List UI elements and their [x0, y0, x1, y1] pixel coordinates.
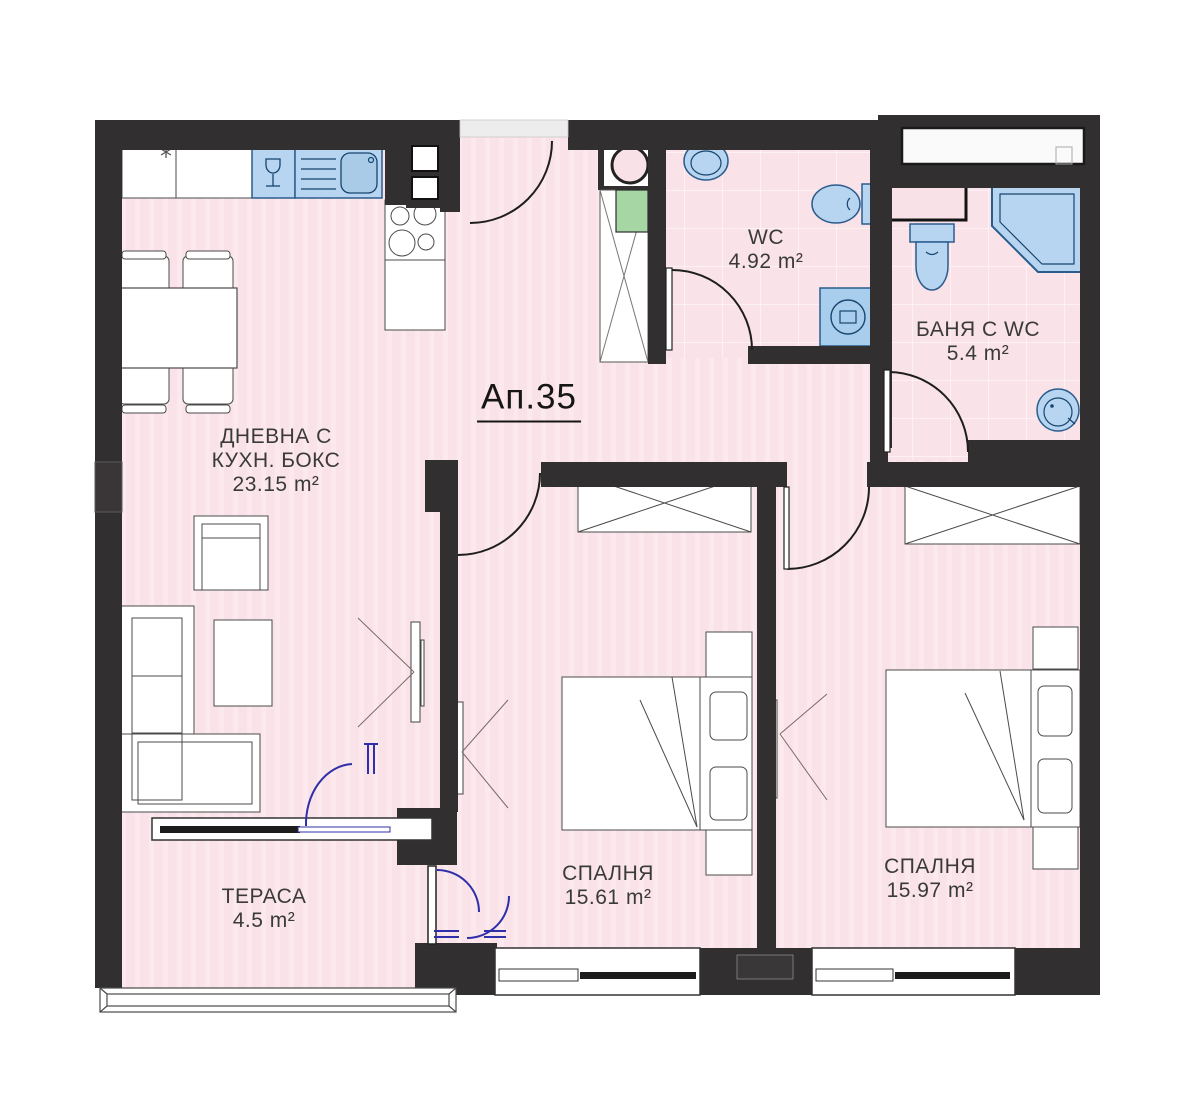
shaft-window	[902, 128, 1084, 164]
bedroom2-door-leaf	[784, 487, 789, 569]
nightstand	[1033, 827, 1078, 869]
living-name-line1: ДНЕВНА С	[212, 425, 341, 449]
wall-notch	[737, 955, 793, 979]
nightstand	[706, 830, 752, 875]
kitchen-counter	[122, 148, 255, 198]
wall-bottom-right	[1015, 948, 1100, 995]
terrace-railing	[100, 988, 456, 1012]
window1-panel	[580, 972, 696, 979]
terrace-name: ТЕРАСА	[222, 885, 307, 909]
bath-vanity	[890, 184, 966, 220]
tv-living-bracket	[421, 640, 424, 706]
tv-living-icon	[411, 622, 420, 722]
boiler-icon	[612, 147, 648, 183]
bathroom-name: БАНЯ С WC	[916, 318, 1040, 342]
bath-sink-icon	[1037, 389, 1079, 431]
wall-bedroom1-bedroom2	[757, 487, 776, 948]
window2-panel	[895, 972, 1010, 979]
bedroom1-name: СПАЛНЯ	[562, 862, 654, 886]
wall-wc-bottom-left	[648, 346, 666, 364]
wall-right	[1080, 180, 1100, 992]
living-area: 23.15 m²	[212, 473, 341, 497]
wall-bath-bottom-right	[968, 440, 1080, 462]
entrance-jamb	[440, 138, 460, 212]
wc-door-leaf	[666, 268, 672, 350]
pillow	[710, 692, 747, 740]
wall-hall-bedroom1	[541, 462, 787, 487]
room-label-terrace: ТЕРАСА 4.5 m²	[222, 885, 307, 933]
wall-closet-wc	[648, 138, 666, 364]
bed-bedroom1	[562, 677, 700, 830]
wc-name: WC	[729, 226, 804, 250]
room-label-bedroom2: СПАЛНЯ 15.97 m²	[884, 855, 976, 903]
chair-back	[122, 251, 166, 259]
bedroom1-area: 15.61 m²	[562, 886, 654, 910]
wall-left-seam	[95, 462, 122, 512]
nightstand	[706, 632, 752, 677]
window2-sash	[816, 969, 893, 981]
wall-bottom-block-left	[415, 943, 497, 995]
coffee-table	[214, 620, 272, 706]
pillow	[1038, 686, 1072, 736]
room-label-bathroom: БАНЯ С WC 5.4 m²	[916, 318, 1040, 366]
pillow	[710, 767, 747, 820]
chair-back	[186, 405, 230, 413]
terrace-door-leaf	[428, 866, 436, 944]
wall-bedroom2-top	[867, 462, 1080, 487]
bath-toilet-icon	[916, 242, 948, 290]
pillow	[1038, 759, 1072, 813]
bedroom2-name: СПАЛНЯ	[884, 855, 976, 879]
apartment-number: Ап.35	[477, 378, 581, 423]
chair-back	[122, 405, 166, 413]
room-label-wc: WC 4.92 m²	[729, 226, 804, 274]
floor-plan: Ап.35 ДНЕВНА С КУХН. БОКС 23.15 m² WC 4.…	[0, 0, 1181, 1093]
wall-left	[95, 148, 122, 988]
wall-wc-bottom-right	[748, 346, 878, 364]
bedroom2-area: 15.97 m²	[884, 879, 976, 903]
electric-panel	[616, 190, 648, 232]
window1-sash	[499, 969, 578, 981]
wall-living-bedroom1	[440, 512, 458, 812]
wall-top-mid	[568, 120, 878, 150]
pillar-living-hall	[425, 460, 458, 512]
wc-toilet-icon	[812, 185, 860, 223]
armchair-seat	[202, 524, 260, 590]
room-label-living: ДНЕВНА С КУХН. БОКС 23.15 m²	[212, 425, 341, 497]
wc-area: 4.92 m²	[729, 250, 804, 274]
chair-back	[186, 251, 230, 259]
kitchen-counter-lower	[385, 260, 445, 330]
bathroom-area: 5.4 m²	[916, 342, 1040, 366]
terrace-area: 4.5 m²	[222, 909, 307, 933]
living-name-line2: КУХН. БОКС	[212, 449, 341, 473]
dining-table	[117, 288, 237, 368]
sink-basin-icon	[341, 153, 377, 193]
entrance-opening	[460, 120, 568, 137]
bed-bedroom2	[886, 670, 1031, 827]
slider-fixed-panel	[160, 826, 300, 833]
bath-toilet-tank	[910, 224, 954, 242]
washing-machine-icon	[820, 288, 876, 346]
bathroom-door-leaf	[884, 370, 890, 452]
slider-open-panel	[298, 827, 390, 832]
nightstand	[1033, 627, 1078, 669]
room-label-bedroom1: СПАЛНЯ 15.61 m²	[562, 862, 654, 910]
floor-plan-drawing	[0, 0, 1181, 1093]
